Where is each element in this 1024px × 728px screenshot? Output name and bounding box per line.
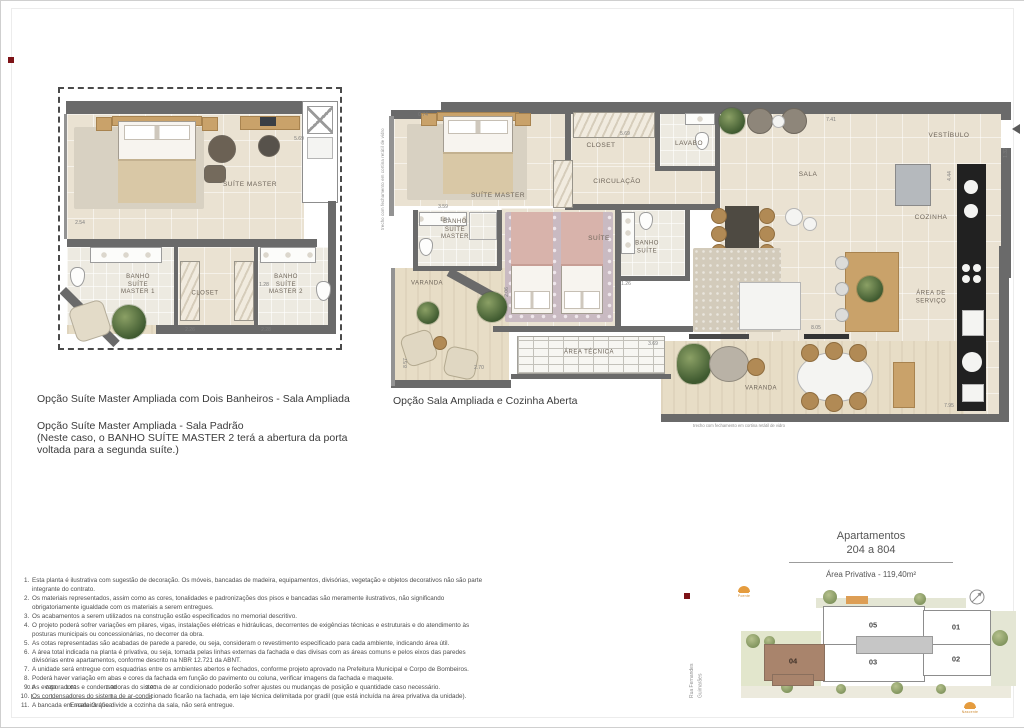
tree [823,590,837,604]
room-label-sala: SALA [799,171,818,179]
room-label-suite-master: SUÍTE MASTER [471,192,525,200]
room-label-banho-suite-master-1: BANHO SUÍTE MASTER 1 [121,274,155,297]
glass-curtain-note-bottom: trecho com fechamento em cortina retátil… [693,423,785,428]
wall [67,239,317,247]
room-label-area-tecnica: ÁREA TÉCNICA [564,349,614,357]
note-item: A área total indicada na planta é privat… [31,649,483,667]
wall [328,201,336,327]
unit-info: Apartamentos 204 a 804 Área Privativa - … [789,529,953,579]
dimension: 2.54 [75,220,85,226]
wall [254,247,258,327]
rattan-chair [825,394,843,412]
twin-bed [511,212,553,314]
dimension: 1.32 [1003,148,1009,158]
round-sofa [709,346,749,382]
unit-number-01: 01 [952,623,960,632]
dimension: 4.44 [947,171,953,181]
dimension: 8.05 [811,325,821,331]
sun-east-label: Nascente [962,710,978,714]
wall [565,204,717,210]
unit-number-03: 03 [869,658,877,667]
wardrobe [234,261,254,321]
plant [857,276,883,302]
room-label-varanda-sul: VARANDA [745,385,777,393]
dimension: 2.70 [474,365,484,371]
dimension: 1.28 [259,282,269,288]
note-item: Poderá haver variação em abas e cores da… [31,675,483,684]
note-item: Os acabamentos a serem utilizados na con… [31,613,483,622]
room-label-closet: CLOSET [586,142,615,150]
compass-icon [968,588,986,606]
tree [914,593,926,605]
registration-mark [8,57,14,63]
dimension: 2.28 [261,327,271,333]
room-label-area-servico: ÁREA DE SERVIÇO [916,291,946,306]
sun-west-icon: Poente [738,586,750,592]
awning [846,596,868,604]
burner [973,275,981,283]
stool [835,308,849,322]
unit-number-05: 05 [869,621,877,630]
side-table [772,115,785,128]
wall [511,374,671,379]
floor-plan-small: SUÍTE MASTER BANHO SUÍTE MASTER 1 BANHO … [58,87,342,350]
dimension: 2.26 [185,327,195,333]
dimension: 1.26 [621,281,631,287]
entry-arrow-icon [1012,124,1020,134]
window-wall [64,114,67,239]
dimension: 8.57 [403,358,409,368]
street-label: Rua Fernandes Guimarães [688,634,705,698]
scale-caption: Escala Gráfica [70,702,112,709]
scale-label: 2.00 [106,685,117,691]
landscaping [991,611,1016,686]
wall [413,266,501,271]
unit-number-04: 04 [789,657,797,666]
dimension: 7.95 [944,403,954,409]
rattan-chair [825,342,843,360]
room-label-vestibulo: VESTÍBULO [929,132,970,140]
sun-west-label: Poente [738,594,750,598]
glass-partition [895,164,931,206]
dining-chair [711,208,727,224]
dimension: 5.69 [294,136,304,142]
caption-option-1: Opção Suíte Master Ampliada com Dois Ban… [37,393,350,405]
stool [835,282,849,296]
unit-04-highlight-step [772,674,814,686]
rattan-chair [849,392,867,410]
desk-chair [258,135,280,157]
scale-bar: 0.0 0.50 1.00 2.00 3.00 Escala Gráfica [29,685,169,715]
laptop [260,117,276,126]
dimension: 5.69 [620,131,630,137]
armchair [208,135,236,163]
room-label-varanda-oeste: VARANDA [411,280,443,288]
dining-chair [711,226,727,242]
note-item: A unidade será entregue com esquadrias e… [31,666,483,675]
room-label-banho-suite: BANHO SUÍTE [635,241,659,256]
note-item: Os materiais representados, assim como a… [31,595,483,613]
caption-option-2-note: (Neste caso, o BANHO SUÍTE MASTER 2 terá… [37,432,347,457]
room-label-circulacao: CIRCULAÇÃO [593,178,641,186]
room-label-suite-master: SUÍTE MASTER [223,181,277,189]
nightstand [202,117,218,131]
scale-label: 0.50 [46,685,57,691]
wall [174,247,178,327]
burner [962,275,970,283]
note-item: Esta planta é ilustrativa com sugestão d… [31,577,483,595]
console [893,362,915,408]
scale-label: 3.00 [146,685,157,691]
tree [891,682,903,694]
shower [469,212,497,240]
caption-option-2: Opção Suíte Master Ampliada - Sala Padrã… [37,420,244,432]
dining-chair [759,226,775,242]
room-label-suite: SUÍTE [588,235,610,243]
tree [746,634,760,648]
sink [964,204,978,218]
caption-option-right: Opção Sala Ampliada e Cozinha Aberta [393,395,577,407]
vanity [685,113,715,125]
tree [936,684,946,694]
floor-plan-large: SUÍTE MASTER CLOSET LAVABO CIRCULAÇÃO BA… [389,96,1015,430]
burner [962,264,970,272]
glass-curtain-note-vertical: trecho com fechamento em cortina retátil… [380,120,385,230]
vanity [621,212,635,254]
sliding-door-track [804,334,849,339]
dimension: 3.69 [648,341,658,347]
washer [962,352,982,372]
sun-east-icon: Nascente [964,702,976,708]
scale-label: 0.0 [27,685,35,691]
room-label-banho-suite-master-2: BANHO SUÍTE MASTER 2 [269,274,303,297]
wardrobe [573,112,655,138]
coffee-table [747,358,765,376]
stool [835,256,849,270]
plant [677,344,711,384]
room-label-lavabo: LAVABO [675,140,703,148]
wall [493,326,693,332]
rattan-chair [801,392,819,410]
registration-mark [684,593,690,599]
dining-chair [759,208,775,224]
pouf [803,217,817,231]
scale-line [31,698,151,699]
dimension: 3.59 [438,204,448,210]
nightstand [515,113,531,126]
tree [992,630,1008,646]
wall [655,110,660,170]
armchair [747,108,773,134]
wall [391,380,511,388]
sliding-door-track [689,334,749,339]
wardrobe [553,160,573,208]
vanity [260,247,316,263]
wall [156,325,336,334]
wall [413,210,418,270]
twin-bed [561,212,603,314]
pouf [785,208,803,226]
side-table [433,336,447,350]
oven [962,310,984,336]
note-item: As cotas representadas são acabadas de p… [31,640,483,649]
room-label-cozinha: COZINHA [915,214,948,222]
dimension: 0.74 [418,112,428,118]
scale-tick [31,694,32,699]
wall [655,166,717,171]
vanity-double [90,247,162,263]
note-item: O projeto poderá sofrer variações em pil… [31,622,483,640]
brochure-page: SUÍTE MASTER BANHO SUÍTE MASTER 1 BANHO … [0,0,1024,728]
unit-area: Área Privativa - 119,40m² [789,570,953,579]
divider [789,562,953,563]
tv-unit [739,282,801,330]
cabinet [307,137,333,159]
plant [477,292,507,322]
burner [973,264,981,272]
linen-cabinet [307,106,333,134]
unit-number-02: 02 [952,655,960,664]
scale-label: 1.00 [66,685,77,691]
wall [497,210,502,270]
dimension: 1.94 [440,217,450,223]
bed [118,121,196,203]
entry-door-gap [1001,120,1011,148]
wall [999,246,1009,418]
scale-tick [71,694,72,699]
utility-sink [962,384,984,402]
wall [685,210,690,280]
unit-title: Apartamentos 204 a 804 [789,529,953,558]
glass-wall [391,268,395,386]
key-plan: 05 01 03 02 04 Rua Fernandes Guimarães P… [686,586,1021,724]
plant [417,302,439,324]
dimension: 2.06 [504,287,510,297]
rattan-chair [801,344,819,362]
scale-tick [111,694,112,699]
kitchen-counter [957,164,986,411]
bed [443,116,513,194]
plant [719,108,745,134]
wall [661,414,1009,422]
nightstand [96,117,112,131]
rattan-chair [442,345,480,381]
palm-plant [112,305,146,339]
wall [66,101,316,114]
tree [836,684,846,694]
scale-tick [51,694,52,699]
dimension: 7.41 [826,117,836,123]
glass-wall [389,116,394,216]
rattan-chair [849,344,867,362]
sink [964,180,978,194]
scale-tick [151,694,152,699]
room-label-closet: CLOSET [191,290,218,298]
building-core [856,636,933,654]
